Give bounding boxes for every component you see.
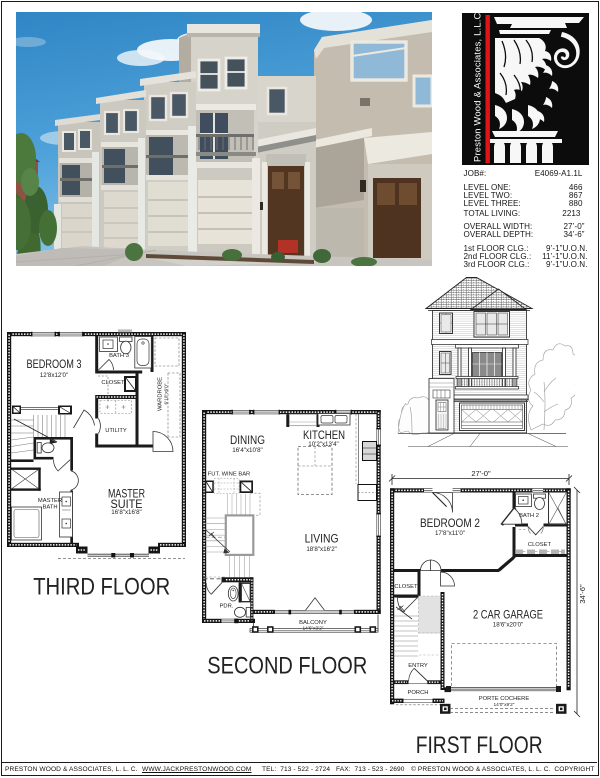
svg-text:BATH: BATH: [42, 505, 57, 511]
svg-text:PORTE COCHERE: PORTE COCHERE: [479, 696, 530, 702]
svg-text:12'8x12'0": 12'8x12'0": [40, 372, 68, 379]
svg-text:CLOSET: CLOSET: [394, 584, 418, 590]
svg-text:KITCHEN: KITCHEN: [303, 430, 345, 442]
svg-text:BEDROOM 3: BEDROOM 3: [27, 359, 82, 371]
svg-text:16'8"x16'8": 16'8"x16'8": [111, 509, 142, 516]
svg-text:17'8"x11'0": 17'8"x11'0": [435, 530, 465, 537]
svg-text:PORCH: PORCH: [408, 690, 429, 696]
svg-text:LIVING: LIVING: [305, 534, 339, 546]
svg-text:CLOSET: CLOSET: [101, 380, 125, 386]
svg-text:FUT. WINE BAR: FUT. WINE BAR: [208, 472, 251, 478]
svg-text:34'-6": 34'-6": [578, 584, 587, 604]
svg-text:DINING: DINING: [230, 435, 265, 447]
svg-text:2 CAR GARAGE: 2 CAR GARAGE: [473, 610, 543, 622]
svg-text:WARDROBE: WARDROBE: [158, 377, 164, 411]
svg-text:6'10"x6'0": 6'10"x6'0": [164, 383, 170, 404]
svg-text:BATH 2: BATH 2: [519, 513, 539, 519]
svg-text:18'8"x16'2": 18'8"x16'2": [306, 546, 337, 553]
svg-text:16'4"x10'8": 16'4"x10'8": [232, 447, 263, 454]
svg-text:27'-0": 27'-0": [471, 469, 491, 478]
svg-text:MASTER: MASTER: [38, 498, 62, 504]
svg-text:10'2"x13'4": 10'2"x13'4": [308, 441, 339, 448]
svg-text:BEDROOM 2: BEDROOM 2: [420, 518, 480, 530]
svg-text:BALCONY: BALCONY: [299, 620, 327, 626]
svg-text:18'6"x20'0": 18'6"x20'0": [493, 622, 524, 629]
svg-text:CLOSET: CLOSET: [528, 542, 552, 548]
svg-text:14'6"x3'2": 14'6"x3'2": [303, 625, 324, 631]
svg-text:PDR.: PDR.: [220, 604, 234, 610]
svg-text:BATH 3: BATH 3: [109, 353, 129, 359]
svg-text:Preston Wood & Associates, L.L: Preston Wood & Associates, L.L.C.: [472, 13, 483, 162]
svg-text:UTILITY: UTILITY: [105, 428, 127, 434]
svg-text:ENTRY: ENTRY: [408, 663, 428, 669]
svg-text:14'0"x9'2": 14'0"x9'2": [494, 702, 515, 708]
